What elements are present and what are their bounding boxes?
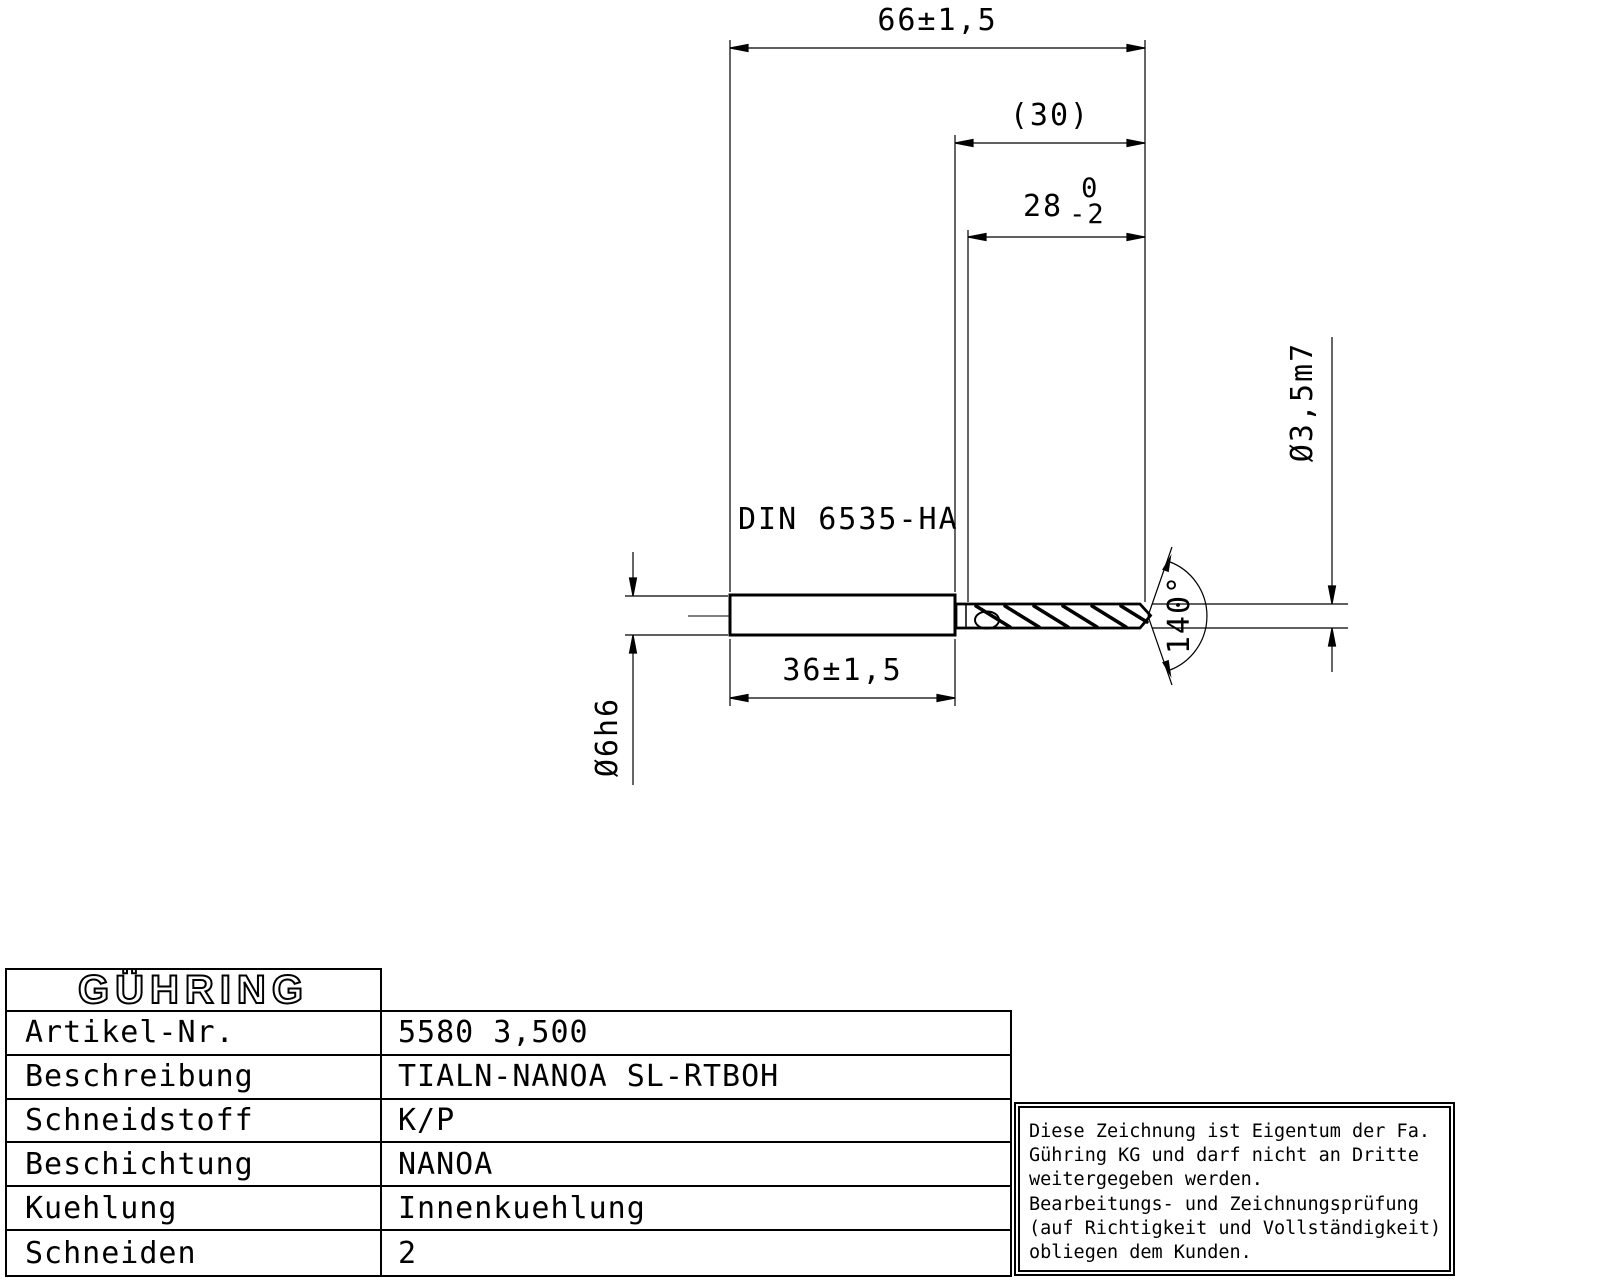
notice-line: weitergegeben werden. <box>1029 1168 1447 1192</box>
spec-value: TIALN-NANOA SL-RTBOH <box>382 1056 1010 1100</box>
dim-overall-length-label: 66±1,5 <box>730 5 1145 37</box>
dim-shank-length-label: 36±1,5 <box>730 655 955 687</box>
spec-value: 2 <box>382 1231 1010 1275</box>
flute-length-tol-lower: -2 <box>1069 202 1106 228</box>
notice-line: obliegen dem Kunden. <box>1029 1241 1447 1265</box>
dim-flute-length-label: 28 0 -2 <box>1023 176 1106 228</box>
dim-drill-diameter-label: Ø3,5m7 <box>1287 337 1319 467</box>
spec-value: 5580 3,500 <box>382 1012 1010 1056</box>
notice-line: (auf Richtigkeit und Vollständigkeit) <box>1029 1217 1447 1241</box>
spec-label: Kuehlung <box>7 1187 382 1231</box>
guehring-logo: GÜHRING <box>78 968 309 1013</box>
ownership-notice: Diese Zeichnung ist Eigentum der Fa. Güh… <box>1014 1102 1455 1276</box>
spec-label: Beschreibung <box>7 1056 382 1100</box>
spec-label: Beschichtung <box>7 1143 382 1187</box>
notice-line: Gühring KG und darf nicht an Dritte <box>1029 1144 1447 1168</box>
spec-value: NANOA <box>382 1143 1010 1187</box>
spec-label: Schneidstoff <box>7 1100 382 1144</box>
dim-ref-length-label: (30) <box>955 100 1145 132</box>
spec-value: Innenkuehlung <box>382 1187 1010 1231</box>
logo-cell: GÜHRING <box>5 968 382 1012</box>
dim-point-angle-label: 140° <box>1164 569 1196 659</box>
flute-length-tolerances: 0 -2 <box>1069 176 1106 228</box>
drawing-sheet: 66±1,5 (30) 28 0 -2 DIN 6535-HA 36±1,5 Ø… <box>0 0 1600 1280</box>
ownership-notice-inner: Diese Zeichnung ist Eigentum der Fa. Güh… <box>1018 1106 1451 1272</box>
spec-label: Schneiden <box>7 1231 382 1275</box>
flute-length-value: 28 <box>1023 192 1063 222</box>
notice-line: Bearbeitungs- und Zeichnungsprüfung <box>1029 1193 1447 1217</box>
shank-standard-label: DIN 6535-HA <box>738 504 959 536</box>
notice-line: Diese Zeichnung ist Eigentum der Fa. <box>1029 1120 1447 1144</box>
drill-part <box>730 595 1151 635</box>
dim-shank-diameter-label: Ø6h6 <box>592 687 624 787</box>
spec-table: Artikel-Nr. 5580 3,500 Beschreibung TIAL… <box>5 1010 1012 1277</box>
spec-value: K/P <box>382 1100 1010 1144</box>
spec-label: Artikel-Nr. <box>7 1012 382 1056</box>
